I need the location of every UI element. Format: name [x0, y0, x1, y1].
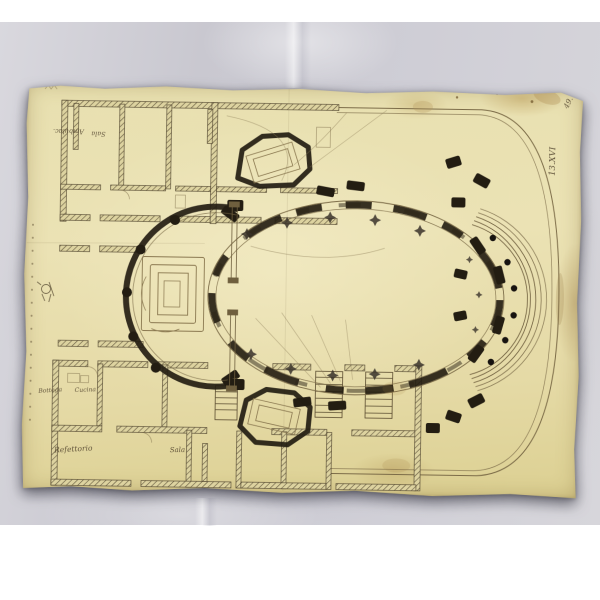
apse-mini-piers [465, 256, 483, 333]
corner-number: 49. [561, 95, 575, 111]
high-altar [141, 256, 205, 332]
room-label-refettorio: Refettorio [53, 443, 93, 454]
apse-colonnade [426, 155, 549, 435]
dotted-margin-line [29, 224, 34, 421]
lower-chapel [240, 389, 311, 445]
room-label-upper-sala: Sala [91, 130, 106, 138]
edge-squiggle [45, 85, 57, 89]
construction-lines [222, 108, 386, 388]
room-label-lower-sala: Sala [170, 446, 186, 454]
vestibule-screens [226, 202, 239, 391]
pencil-monogram [37, 282, 54, 302]
room-label-ambulatory: Ambulac. [53, 127, 85, 135]
room-label-bottega: Bottega [37, 386, 63, 395]
room-label-cucina: Cucina [75, 386, 97, 394]
drawing-sheet: Ambulac. Sala Bottega Cucina Refettorio … [21, 83, 583, 499]
photo-of-drawing: { "palette": { "page_white": "#ffffff", … [0, 0, 600, 600]
drawing-sheet-wrapper: Ambulac. Sala Bottega Cucina Refettorio … [21, 83, 583, 499]
colonnade-pier-blobs [217, 178, 507, 413]
shelf-mark: 13.XVI [548, 146, 558, 176]
backdrop-crease [195, 498, 217, 526]
plan-drawing: Ambulac. Sala Bottega Cucina Refettorio … [21, 83, 583, 499]
apse-pier-blobs [426, 155, 492, 434]
backdrop-crease [285, 22, 311, 88]
nave-piers [239, 210, 428, 383]
